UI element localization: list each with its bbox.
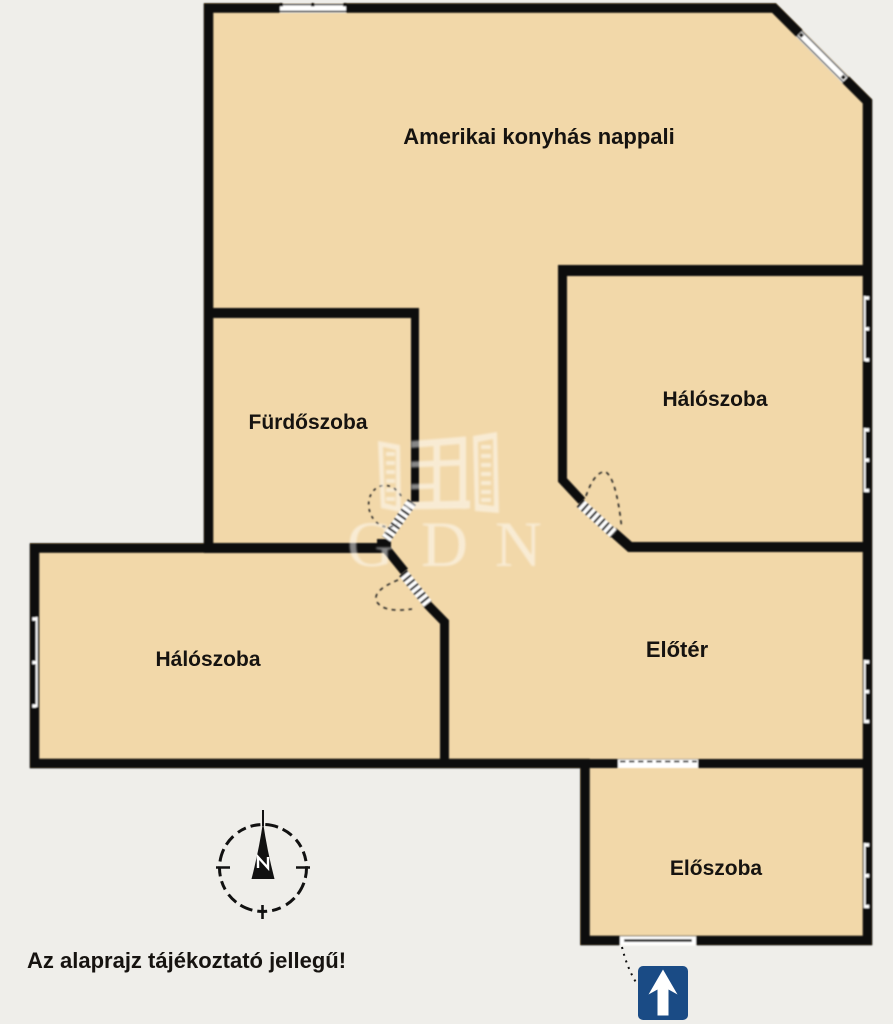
svg-text:Előszoba: Előszoba [670,857,763,880]
svg-text:Amerikai konyhás nappali: Amerikai konyhás nappali [403,124,674,149]
svg-text:Előtér: Előtér [646,637,709,662]
svg-text:GDN: GDN [347,509,569,581]
svg-text:Fürdőszoba: Fürdőszoba [249,411,368,434]
svg-text:Hálószoba: Hálószoba [662,388,767,411]
svg-text:Az alaprajz tájékoztató jelleg: Az alaprajz tájékoztató jellegű! [27,948,346,973]
svg-text:Hálószoba: Hálószoba [155,648,260,671]
